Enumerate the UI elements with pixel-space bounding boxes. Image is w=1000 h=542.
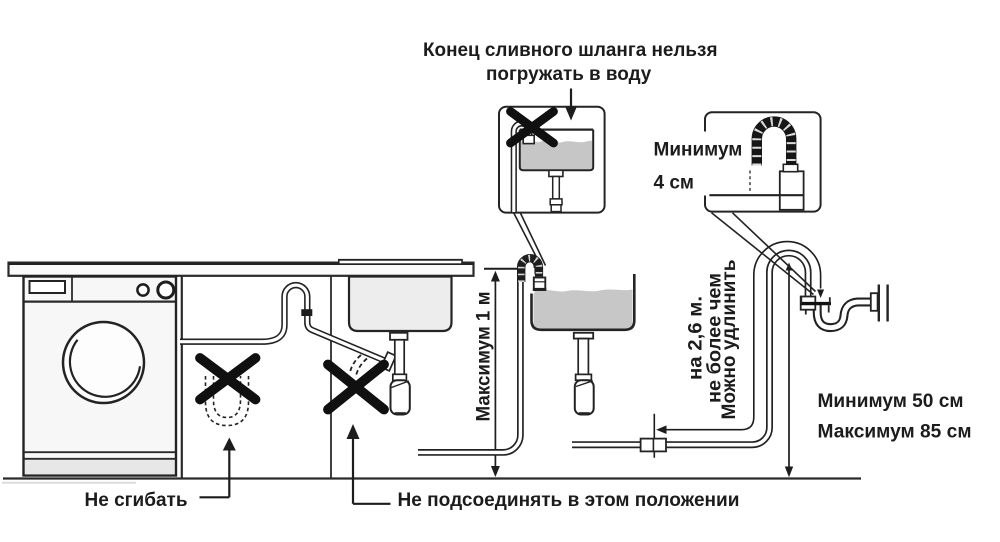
svg-text:не более чем: не более чем [705, 273, 726, 403]
svg-text:Минимум 50 см: Минимум 50 см [818, 391, 964, 412]
svg-text:Минимум: Минимум [654, 140, 743, 161]
svg-text:Максимум 1 м: Максимум 1 м [474, 292, 495, 422]
svg-text:Не сгибать: Не сгибать [85, 490, 188, 511]
svg-text:погружать в воду: погружать в воду [486, 64, 652, 85]
svg-text:Конец сливного шланга нельзя: Конец сливного шланга нельзя [423, 40, 718, 61]
svg-text:на 2,6 м.: на 2,6 м. [686, 296, 707, 380]
svg-text:Не подсоединять в этом положен: Не подсоединять в этом положении [398, 490, 740, 511]
svg-text:4 см: 4 см [654, 173, 694, 194]
svg-text:Максимум 85 см: Максимум 85 см [818, 422, 972, 443]
